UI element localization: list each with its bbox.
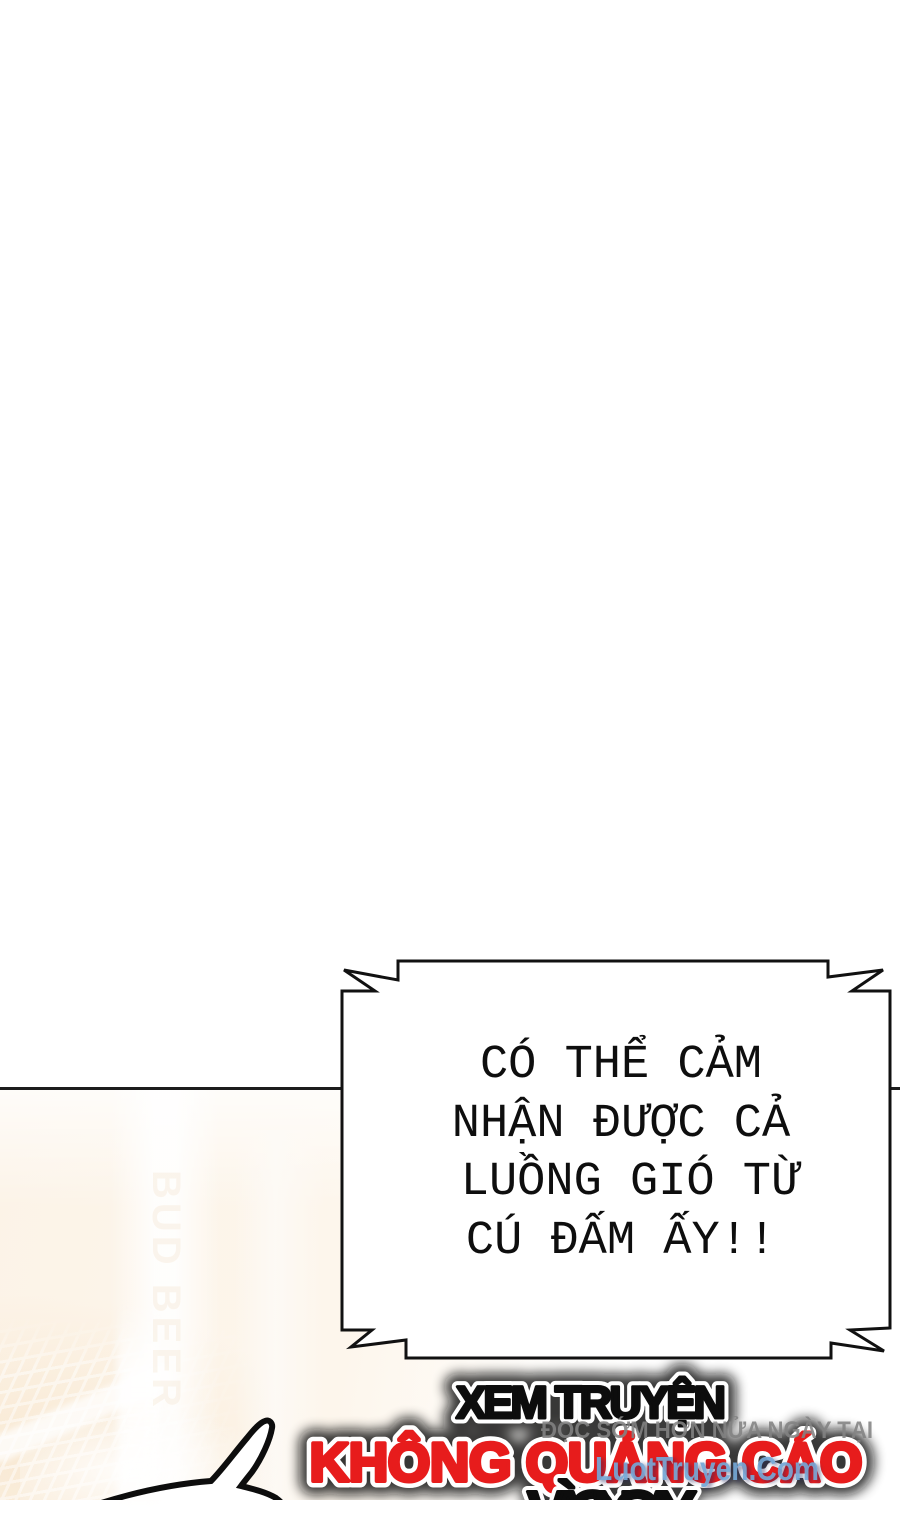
svg-text:ĐỌC SỚM HƠN NỬA NGÀY TẠI: ĐỌC SỚM HƠN NỬA NGÀY TẠI xyxy=(541,1415,873,1444)
svg-text:LuotTruyen.Com: LuotTruyen.Com xyxy=(595,1450,819,1487)
